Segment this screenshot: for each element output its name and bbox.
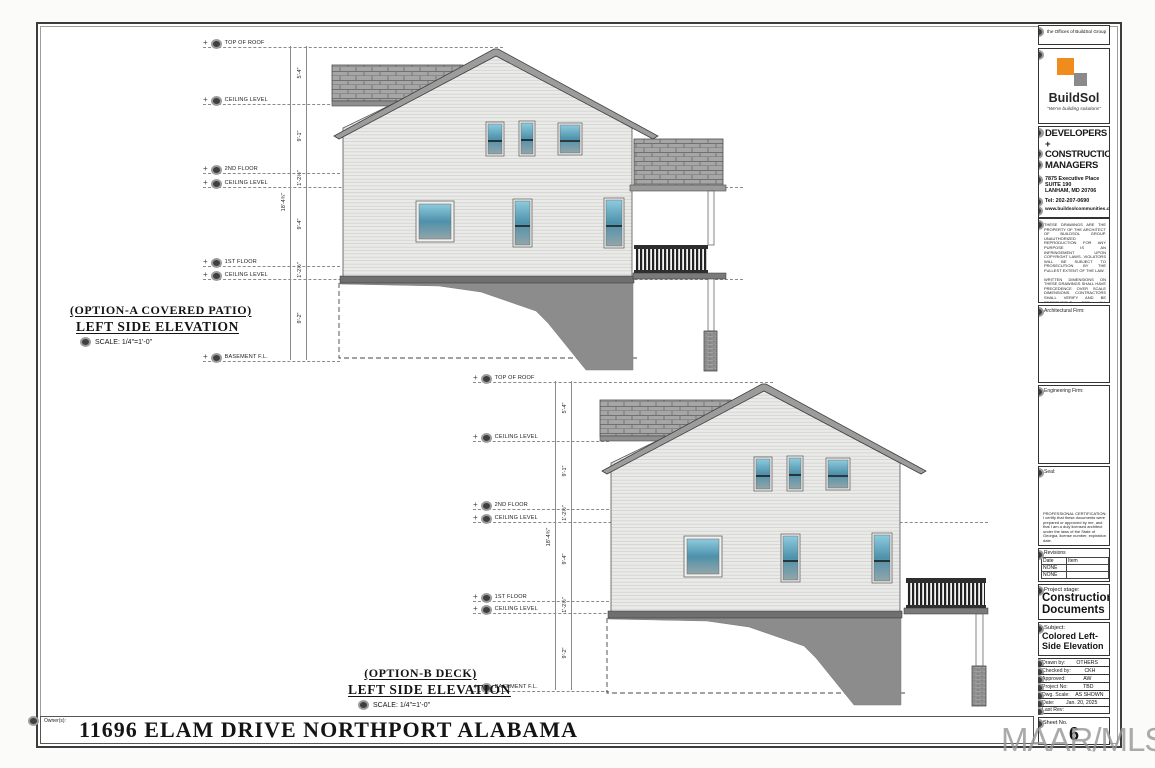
- callout-dot-icon: [358, 700, 369, 710]
- engineering-firm-box: Engineering Firm:: [1038, 385, 1110, 464]
- firm-line: DEVELOPERS +: [1045, 129, 1107, 150]
- meta-row: Approved:AW: [1038, 674, 1110, 682]
- meta-row: Project No:TBD: [1038, 682, 1110, 690]
- level-arrow-icon: +: [203, 353, 208, 361]
- meta-row: Date:Jan. 20, 2025: [1038, 698, 1110, 706]
- level-label: 1ST FLOOR: [225, 259, 257, 266]
- level-arrow-icon: +: [473, 605, 478, 613]
- brand-tagline: "We're building solutions": [1039, 107, 1109, 112]
- firm-line: MANAGERS: [1045, 161, 1107, 172]
- callout-dot-icon: [211, 165, 222, 175]
- disclaimer-paragraph: WRITTEN DIMENSIONS ON THESE DRAWINGS SHA…: [1044, 278, 1106, 303]
- project-stage-value: Documents: [1039, 605, 1109, 617]
- level-arrow-icon: +: [203, 179, 208, 187]
- level-arrow-icon: +: [473, 514, 478, 522]
- level-label: CEILING LEVEL: [495, 515, 538, 522]
- elevation-a-drawing: [320, 40, 740, 375]
- seal-label: Seal:: [1039, 467, 1109, 475]
- meta-row: Last Rev:: [1038, 706, 1110, 714]
- logo-box: BuildSol "We're building solutions": [1038, 48, 1110, 124]
- logo-orange-square-icon: [1057, 58, 1074, 75]
- dimension-line: [555, 381, 556, 690]
- dimension-text: 1'-2½": [297, 163, 303, 193]
- brick-pier: [704, 331, 717, 371]
- subject-value: Side Elevation: [1039, 641, 1109, 651]
- option-title: (OPTION-B DECK): [348, 666, 493, 681]
- callout-dot-icon: [211, 179, 222, 189]
- level-label: 1ST FLOOR: [495, 594, 527, 601]
- dimension-text: 1'-2½": [562, 590, 568, 620]
- address-line: LANHAM, MD 20706: [1045, 188, 1107, 194]
- elevation-b-title: (OPTION-B DECK) LEFT SIDE ELEVATION SCAL…: [348, 666, 493, 710]
- elevation-a-title: (OPTION-A COVERED PATIO) LEFT SIDE ELEVA…: [70, 303, 245, 347]
- mls-watermark: MAAR/MLS: [1001, 721, 1155, 759]
- brand-name: BuildSol: [1039, 91, 1109, 105]
- callout-dot-icon: [481, 374, 492, 384]
- level-label: 2ND FLOOR: [225, 166, 258, 173]
- dimension-text: 5'-4": [297, 58, 303, 88]
- view-title: LEFT SIDE ELEVATION: [70, 319, 245, 335]
- dimension-line: [306, 46, 307, 360]
- floor-band: [340, 276, 634, 283]
- subject-label: Subject:: [1039, 623, 1109, 631]
- level-arrow-icon: +: [203, 165, 208, 173]
- scale-text: SCALE: 1/4"=1'-0": [373, 702, 430, 709]
- option-title: (OPTION-A COVERED PATIO): [70, 303, 245, 318]
- level-label: CEILING LEVEL: [495, 434, 538, 441]
- view-title: LEFT SIDE ELEVATION: [348, 682, 493, 698]
- disclaimer-box: THESE DRAWINGS ARE THE PROPERTY OF THE A…: [1038, 218, 1110, 303]
- owner-label: Owner(s):: [44, 718, 66, 724]
- level-arrow-icon: +: [203, 96, 208, 104]
- level-arrow-icon: +: [203, 258, 208, 266]
- dimension-text: 18'-4¾": [281, 187, 287, 217]
- revision-row: NONE: [1042, 565, 1109, 572]
- windows-upper: [754, 456, 850, 491]
- level-arrow-icon: +: [473, 501, 478, 509]
- callout-dot-icon: [80, 337, 91, 347]
- level-label: BASEMENT F.L.: [225, 354, 268, 361]
- logo-gray-square-icon: [1074, 73, 1087, 86]
- dimension-text: 1'-2½": [562, 498, 568, 528]
- project-stage-box: Project stage: Construction Documents: [1038, 584, 1110, 620]
- callout-dot-icon: [481, 501, 492, 511]
- meta-row: Dwg. Scale:AS SHOWN: [1038, 690, 1110, 698]
- level-label: CEILING LEVEL: [225, 97, 268, 104]
- floor-band: [608, 611, 902, 618]
- revision-row: NONE: [1042, 572, 1109, 579]
- callout-dot-icon: [481, 433, 492, 443]
- level-label: CEILING LEVEL: [225, 272, 268, 279]
- owner-bar: Owner(s): 11696 ELAM DRIVE NORTHPORT ALA…: [40, 716, 1034, 744]
- firm-website: www.buildsolcommunities.com: [1045, 207, 1107, 212]
- foundation-grade: [340, 283, 633, 370]
- deck-railing: [904, 578, 988, 706]
- brick-pier: [972, 666, 986, 706]
- level-arrow-icon: +: [473, 433, 478, 441]
- level-label: CEILING LEVEL: [225, 180, 268, 187]
- level-arrow-icon: +: [203, 39, 208, 47]
- scale-note: SCALE: 1/4"=1'-0": [70, 337, 245, 347]
- architectural-firm-label: Architectural Firm:: [1039, 306, 1109, 314]
- scale-note: SCALE: 1/4"=1'-0": [348, 700, 493, 710]
- scale-text: SCALE: 1/4"=1'-0": [95, 339, 152, 346]
- revisions-col-item: Item: [1067, 558, 1109, 565]
- dimension-text: 9'-4": [297, 209, 303, 239]
- office-header-box: the Offices of BuildSol Group: [1038, 25, 1110, 45]
- dimension-line: [571, 381, 572, 690]
- windows-upper: [486, 121, 582, 156]
- office-header: the Offices of BuildSol Group: [1047, 29, 1106, 34]
- project-stage-value: Construction: [1039, 593, 1109, 605]
- dimension-text: 9'-1": [297, 121, 303, 151]
- callout-dot-icon: [211, 96, 222, 106]
- dimension-text: 9'-2": [562, 638, 568, 668]
- callout-dot-icon: [211, 271, 222, 281]
- dimension-text: 9'-1": [562, 456, 568, 486]
- level-arrow-icon: +: [473, 593, 478, 601]
- level-label: CEILING LEVEL: [495, 606, 538, 613]
- callout-dot-icon: [211, 353, 222, 363]
- firm-address: 7875 Executive Place SUITE 190 LANHAM, M…: [1045, 176, 1107, 194]
- dimension-text: 9'-4": [562, 544, 568, 574]
- foundation-grade: [608, 618, 901, 705]
- engineering-firm-label: Engineering Firm:: [1039, 386, 1109, 394]
- meta-row: Drawn by:OTHERS: [1038, 658, 1110, 666]
- drawing-sheet-page: +TOP OF ROOF +CEILING LEVEL +2ND FLOOR +…: [0, 0, 1155, 768]
- callout-dot-icon: [481, 605, 492, 615]
- subject-value: Colored Left-: [1039, 631, 1109, 641]
- dimension-text: 1'-2½": [297, 255, 303, 285]
- callout-dot-icon: [481, 593, 492, 603]
- revisions-title: Revisions: [1039, 549, 1109, 556]
- revisions-col-date: Date: [1042, 558, 1067, 565]
- callout-dot-icon: [211, 39, 222, 49]
- seal-box: Seal: PROFESSIONAL CERTIFICATION: I cert…: [1038, 466, 1110, 546]
- dimension-text: 18'-4¾": [546, 522, 552, 552]
- dimension-line: [290, 46, 291, 360]
- firm-line: CONSTRUCTION: [1045, 150, 1107, 161]
- dimension-text: 5'-4": [562, 393, 568, 423]
- level-arrow-icon: +: [473, 374, 478, 382]
- level-label: 2ND FLOOR: [495, 502, 528, 509]
- meta-box: Drawn by:OTHERS Checked by:CKH Approved:…: [1038, 658, 1110, 715]
- patio-railing: [633, 191, 726, 371]
- revisions-box: Revisions DateItem NONE NONE: [1038, 548, 1110, 582]
- level-label: TOP OF ROOF: [225, 40, 265, 47]
- callout-dot-icon: [481, 514, 492, 524]
- callout-dot-icon: [211, 258, 222, 268]
- project-address: 11696 ELAM DRIVE NORTHPORT ALABAMA: [79, 717, 578, 743]
- dimension-text: 9'-2": [297, 303, 303, 333]
- meta-row: Checked by:CKH: [1038, 666, 1110, 674]
- revisions-table: DateItem NONE NONE: [1041, 557, 1109, 579]
- disclaimer-paragraph: THESE DRAWINGS ARE THE PROPERTY OF THE A…: [1044, 223, 1106, 274]
- elevation-b-drawing: [588, 375, 1008, 710]
- level-arrow-icon: +: [203, 271, 208, 279]
- firm-phone: Tel: 202-207-0690: [1045, 198, 1107, 204]
- certification-text: PROFESSIONAL CERTIFICATION: I certify th…: [1043, 512, 1107, 544]
- patio-roof: [630, 139, 726, 191]
- level-label: TOP OF ROOF: [495, 375, 535, 382]
- architectural-firm-box: Architectural Firm:: [1038, 305, 1110, 383]
- firm-box: DEVELOPERS + CONSTRUCTION MANAGERS 7875 …: [1038, 126, 1110, 218]
- subject-box: Subject: Colored Left- Side Elevation: [1038, 622, 1110, 656]
